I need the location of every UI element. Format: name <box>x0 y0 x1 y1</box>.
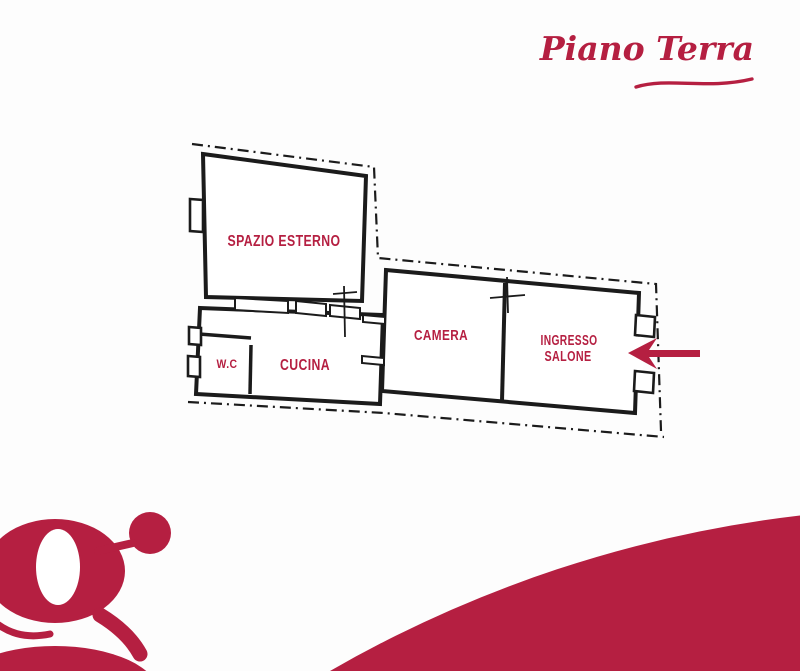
window <box>296 301 326 316</box>
room-label-spazio-esterno: SPAZIO ESTERNO <box>228 233 341 250</box>
bottom-curve-decoration <box>330 516 800 671</box>
logo-g <box>0 512 171 671</box>
room-label-ingresso: INGRESSO <box>541 333 598 349</box>
pilaster <box>190 199 203 232</box>
pilaster <box>188 356 200 377</box>
window <box>235 298 288 313</box>
pilaster <box>634 371 654 393</box>
floor-title: Piano Terra <box>540 30 754 82</box>
pilaster <box>635 315 655 337</box>
logo-g-counter <box>36 529 80 605</box>
room-block-cucina-wc <box>196 308 383 404</box>
floorplan-canvas: SPAZIO ESTERNO CAMERA INGRESSO SALONE CU… <box>0 0 800 671</box>
room-spazio-esterno <box>203 154 366 301</box>
door-opening <box>362 356 384 365</box>
wc-partition-wall <box>250 345 251 394</box>
logo-g-neck <box>100 615 140 654</box>
pilaster <box>189 327 201 345</box>
page: SPAZIO ESTERNO CAMERA INGRESSO SALONE CU… <box>0 0 800 671</box>
room-label-wc: W.C <box>217 357 238 371</box>
floor-title-text: Piano Terra <box>540 29 754 68</box>
door-opening <box>363 315 385 324</box>
logo-g-ear <box>129 512 171 554</box>
room-label-salone: SALONE <box>545 349 592 365</box>
title-flourish-icon <box>634 76 756 91</box>
room-label-cucina: CUCINA <box>280 357 330 374</box>
room-label-camera: CAMERA <box>414 327 468 344</box>
